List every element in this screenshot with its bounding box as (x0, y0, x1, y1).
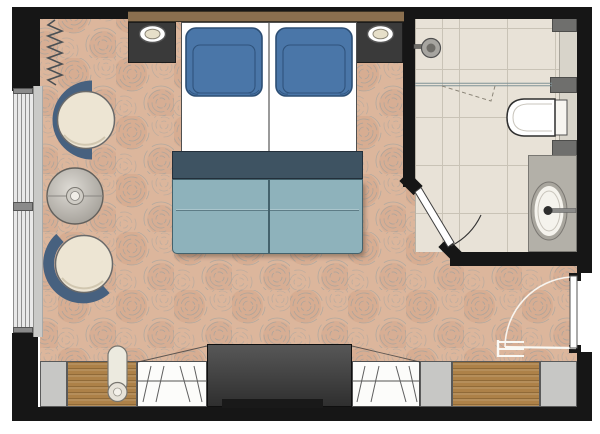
wardrobe-left-shelf-line (138, 380, 206, 382)
window-sill (33, 86, 43, 337)
wood-console (452, 361, 540, 407)
side-panel-middle (420, 361, 452, 407)
luggage-bench (67, 361, 137, 407)
wall-bathroom-partition (403, 7, 415, 187)
mattress-split-line (268, 23, 270, 152)
wall-left-upper (12, 7, 40, 91)
side-panel-right (540, 361, 577, 407)
nightstand-right (356, 22, 403, 63)
headboard-panel (128, 11, 404, 22)
round-side-table (47, 168, 103, 224)
window-cap-top (13, 88, 33, 94)
bed-throw (172, 151, 363, 179)
entrance-door (505, 276, 577, 348)
entrance-door-jamb-bottom (569, 345, 581, 353)
blanket-split-line (268, 180, 270, 253)
wall-right-lower (577, 352, 592, 421)
media-unit-base (222, 399, 323, 408)
wall-niche-block-top (552, 17, 577, 32)
wardrobe-left (137, 361, 207, 407)
entrance-door-jamb-top (569, 273, 581, 281)
wall-niche-block-middle (550, 77, 577, 93)
media-unit (207, 344, 352, 407)
vanity-counter (528, 155, 577, 252)
wall-right-upper (577, 7, 592, 273)
entrance-door-leaf (570, 276, 577, 348)
folding-luggage-rack (498, 340, 524, 357)
wardrobe-right-shelf-line (353, 380, 419, 382)
wall-niche-block-bottom (552, 140, 577, 156)
entrance-door-open-position (505, 347, 576, 348)
nightstand-left (128, 22, 176, 63)
window-transom (13, 202, 33, 211)
entrance-door-swing-arc (505, 277, 571, 347)
wardrobe-right (352, 361, 420, 407)
lounge-chair-lower (49, 236, 113, 298)
wall-bathroom-bottom (450, 252, 592, 266)
side-panel-left (40, 361, 67, 407)
lounge-chair-upper (58, 86, 115, 154)
wall-bottom (12, 407, 592, 421)
floor-plan (0, 0, 600, 434)
window-cap-bottom (13, 327, 33, 333)
curtain-zigzag (48, 20, 62, 85)
